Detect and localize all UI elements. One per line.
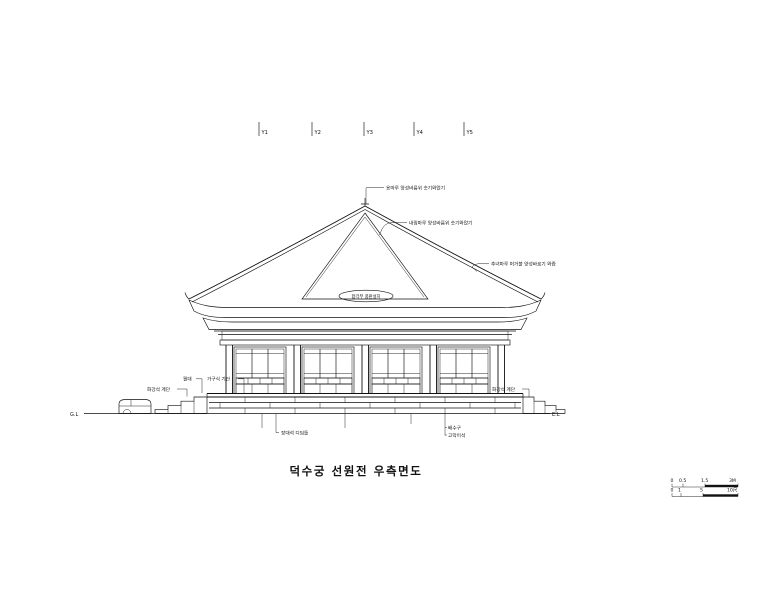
annotation-right-stair: 화강석 계단 (492, 386, 529, 397)
scale-m-3: 3M (729, 478, 736, 484)
woldae-label: 월대 (183, 376, 192, 383)
gomaki-stone-label: 고막이석 (448, 432, 465, 439)
left-stair-label: 화강석 계단 (147, 386, 171, 393)
annotation-stepping-stone: 장대석 디딤돌 (262, 414, 345, 437)
scale-bar: 0 0.5 1.5 3M 0 1 5 10尺 (671, 478, 739, 497)
scale-bar-meters: 0 0.5 1.5 3M (671, 478, 739, 487)
drain-label: 배수구 (448, 425, 462, 432)
ground-line: G.L E.L (70, 412, 560, 418)
grid-label-y2: Y2 (314, 130, 321, 136)
grid-label-y4: Y4 (416, 130, 424, 136)
elevation-drawing-sheet: Y1 Y2 Y3 Y4 Y5 합각부 풍판설치 (0, 0, 778, 593)
stylobate-masonry (207, 394, 523, 414)
scale-m-filled-segment (705, 485, 738, 487)
gable-label: 합각부 풍판설치 (351, 293, 380, 300)
grid-label-y5: Y5 (466, 130, 473, 136)
annotation-woldae: 월대 (183, 376, 202, 394)
stylobate-label: 가구식 기단 (207, 376, 231, 383)
scale-bar-cheok: 0 1 5 10尺 (671, 488, 739, 497)
annotation-drain: 배수구 고막이석 (411, 414, 465, 440)
ground-level-right-label: E.L (552, 412, 560, 418)
window-bay-1 (234, 347, 286, 394)
window-bay-3 (370, 347, 422, 394)
scale-c-filled-segment (703, 494, 738, 496)
scale-m-15: 1.5 (701, 478, 708, 484)
wall-beam (220, 340, 510, 345)
annotation-left-stair: 화강석 계단 (147, 386, 187, 397)
scale-c-5: 5 (700, 488, 703, 494)
stepping-stone-label: 장대석 디딤돌 (281, 430, 309, 437)
eave-tile-band (189, 300, 541, 318)
ground-level-left-label: G.L (70, 412, 78, 418)
hip-ridge-label: 추녀마루 머거불 양성바르기 와즙 (491, 261, 557, 268)
right-stair-label: 화강석 계단 (492, 386, 516, 393)
roof: 합각부 풍판설치 (185, 198, 545, 302)
window-bay-2 (302, 347, 354, 394)
eaves (189, 300, 541, 340)
scale-c-10: 10尺 (727, 488, 738, 494)
scale-c-1: 1 (678, 488, 681, 494)
ridge-label: 용마루 양성바름위 숫기와얹기 (386, 185, 445, 192)
rafter-band (203, 318, 527, 330)
window-bay-4 (438, 347, 490, 394)
descending-ridge-label: 내림마루 양성바름위 숫기와얹기 (409, 220, 472, 227)
grid-axis: Y1 Y2 Y3 Y4 Y5 (259, 122, 473, 136)
grid-label-y1: Y1 (261, 130, 268, 136)
ridge-finial (361, 198, 369, 206)
stone-object (119, 400, 151, 414)
grid-label-y3: Y3 (366, 130, 373, 136)
drawing-title: 덕수궁 선원전 우측면도 (289, 464, 422, 478)
scale-m-05: 0.5 (679, 478, 686, 484)
elevation-drawing: Y1 Y2 Y3 Y4 Y5 합각부 풍판설치 (0, 0, 778, 593)
wall (220, 340, 510, 394)
bracket-band (222, 331, 508, 340)
annotation-ridge: 용마루 양성바름위 숫기와얹기 (366, 185, 445, 205)
scale-c-0: 0 (671, 488, 674, 494)
scale-m-0: 0 (671, 478, 674, 484)
left-staircase (155, 397, 207, 414)
